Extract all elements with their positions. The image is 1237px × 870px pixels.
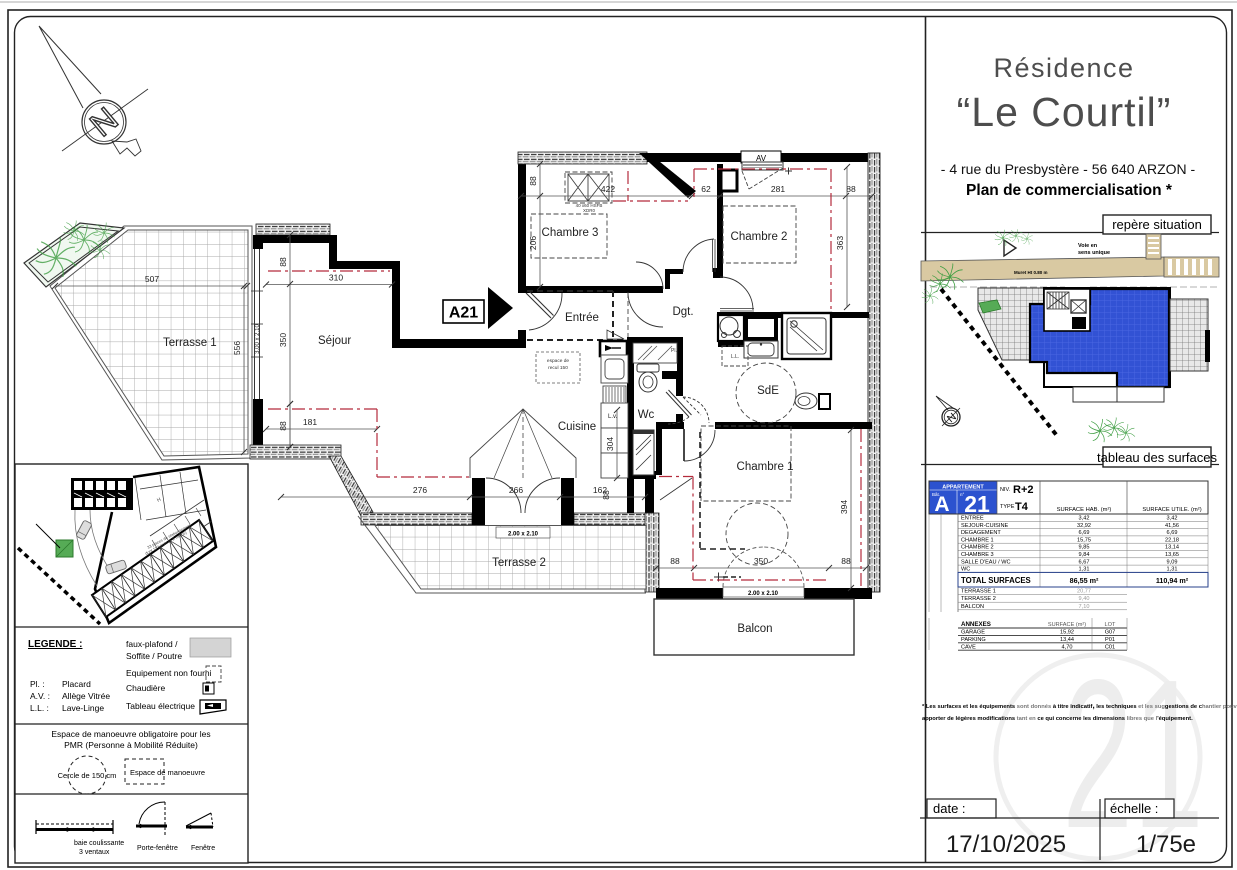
svg-text:C01: C01	[1105, 644, 1115, 650]
svg-text:APPARTEMENT: APPARTEMENT	[942, 485, 984, 491]
svg-text:41,56: 41,56	[1165, 523, 1179, 529]
svg-text:Voie en: Voie en	[1078, 243, 1098, 249]
svg-text:G07: G07	[1105, 630, 1116, 636]
svg-text:SEJOUR-CUISINE: SEJOUR-CUISINE	[961, 523, 1009, 529]
svg-text:BALCON: BALCON	[961, 604, 984, 610]
svg-text:R+2: R+2	[1013, 484, 1034, 496]
svg-text:422: 422	[601, 184, 615, 194]
svg-text:363: 363	[835, 236, 845, 250]
svg-text:6,67: 6,67	[1079, 559, 1090, 565]
svg-text:Wc: Wc	[638, 409, 655, 421]
svg-text:Terrasse 1: Terrasse 1	[163, 337, 217, 349]
svg-text:SURFACE HAB. (m²): SURFACE HAB. (m²)	[1057, 507, 1112, 513]
svg-text:WC: WC	[961, 567, 970, 573]
svg-text:3,42: 3,42	[1167, 516, 1178, 522]
svg-text:Terrasse 2: Terrasse 2	[492, 557, 546, 569]
svg-text:CHAMBRE 1: CHAMBRE 1	[961, 537, 994, 543]
svg-text:Espace de manoeuvre obligatoir: Espace de manoeuvre obligatoire pour les	[51, 729, 210, 739]
svg-text:2.00 x 2.10: 2.00 x 2.10	[748, 591, 779, 597]
svg-text:A.V. :: A.V. :	[30, 691, 50, 701]
svg-text:86,55 m²: 86,55 m²	[1070, 576, 1099, 585]
svg-text:A: A	[934, 493, 949, 516]
svg-text:310: 310	[329, 273, 343, 283]
svg-text:6,69: 6,69	[1167, 530, 1178, 536]
svg-text:15,75: 15,75	[1077, 537, 1091, 543]
svg-text:faux-plafond /: faux-plafond /	[126, 639, 178, 649]
svg-text:CHAMBRE 3: CHAMBRE 3	[961, 552, 994, 558]
svg-text:- 4 rue du Presbystère - 56 64: - 4 rue du Presbystère - 56 640 ARZON -	[941, 161, 1196, 177]
svg-text:T4: T4	[1015, 501, 1029, 513]
svg-text:PARKING: PARKING	[961, 637, 986, 643]
svg-text:Pl. :: Pl. :	[30, 679, 45, 689]
svg-text:LOT: LOT	[1105, 622, 1116, 628]
svg-text:TERRASSE 1: TERRASSE 1	[961, 589, 996, 595]
svg-text:Lave-Linge: Lave-Linge	[62, 703, 104, 713]
svg-text:88: 88	[528, 176, 538, 186]
svg-text:XDR0: XDR0	[583, 208, 596, 213]
svg-text:Plan de commercialisation *: Plan de commercialisation *	[966, 182, 1173, 199]
svg-text:SURFACE (m²): SURFACE (m²)	[1048, 622, 1086, 628]
svg-text:20,77: 20,77	[1077, 589, 1091, 595]
svg-text:recul 150: recul 150	[548, 365, 568, 371]
svg-text:Soffite / Poutre: Soffite / Poutre	[126, 651, 182, 661]
svg-text:repère situation: repère situation	[1112, 217, 1202, 232]
svg-text:9,85: 9,85	[1079, 545, 1090, 551]
svg-text:Séjour: Séjour	[318, 335, 351, 347]
svg-text:A21: A21	[449, 305, 478, 322]
svg-text:Tableau électrique: Tableau électrique	[126, 701, 195, 711]
svg-text:DEGAGEMENT: DEGAGEMENT	[961, 530, 1001, 536]
svg-text:276: 276	[413, 485, 427, 495]
svg-text:TYPE: TYPE	[1000, 504, 1015, 510]
svg-text:Chambre 2: Chambre 2	[731, 231, 788, 243]
svg-text:181: 181	[303, 417, 317, 427]
svg-text:88: 88	[846, 184, 856, 194]
svg-text:266: 266	[509, 485, 523, 495]
svg-text:P01: P01	[1105, 637, 1115, 643]
svg-text:PMR (Personne à Mobilité Rédui: PMR (Personne à Mobilité Réduite)	[64, 740, 198, 750]
svg-text:507: 507	[145, 274, 159, 284]
svg-text:2.00 x 2.10: 2.00 x 2.10	[508, 532, 539, 538]
svg-text:Porte-fenêtre: Porte-fenêtre	[137, 845, 178, 852]
svg-text:88: 88	[278, 257, 288, 267]
svg-text:1/75e: 1/75e	[1136, 831, 1196, 858]
svg-text:Allège Vitrée: Allège Vitrée	[62, 691, 110, 701]
svg-text:394: 394	[839, 500, 849, 514]
svg-text:Placard: Placard	[62, 679, 91, 689]
svg-text:21: 21	[964, 491, 990, 517]
svg-text:13,65: 13,65	[1165, 552, 1179, 558]
svg-text:556: 556	[232, 341, 242, 355]
svg-text:TOTAL SURFACES: TOTAL SURFACES	[961, 576, 1031, 585]
svg-text:Cercle de 150 cm: Cercle de 150 cm	[58, 771, 117, 780]
svg-text:ANNEXES: ANNEXES	[961, 621, 991, 628]
svg-text:L.v.: L.v.	[608, 414, 618, 420]
svg-text:SALLE D'EAU / WC: SALLE D'EAU / WC	[961, 559, 1011, 565]
svg-text:Equipement non fourni: Equipement non fourni	[126, 668, 212, 678]
svg-text:350: 350	[754, 556, 768, 566]
svg-text:Chaudière: Chaudière	[126, 683, 165, 693]
svg-text:3 ventaux: 3 ventaux	[79, 849, 110, 856]
svg-text:9,40: 9,40	[1079, 596, 1090, 602]
svg-text:CAVE: CAVE	[961, 644, 976, 650]
svg-text:3.00 x 2.10: 3.00 x 2.10	[255, 323, 261, 353]
svg-text:tableau des surfaces: tableau des surfaces	[1097, 450, 1217, 465]
svg-text:espace de: espace de	[547, 358, 569, 364]
svg-text:L.L. :: L.L. :	[30, 703, 49, 713]
svg-text:Espace de manoeuvre: Espace de manoeuvre	[130, 768, 205, 777]
svg-text:“Le Courtil”: “Le Courtil”	[957, 89, 1172, 135]
svg-text:9,09: 9,09	[1167, 559, 1178, 565]
svg-text:Pl.: Pl.	[671, 348, 677, 354]
svg-text:88: 88	[601, 490, 611, 500]
svg-text:Résidence: Résidence	[993, 53, 1134, 83]
svg-text:13,14: 13,14	[1165, 545, 1179, 551]
svg-text:281: 281	[771, 184, 785, 194]
svg-text:Balcon: Balcon	[737, 623, 772, 635]
svg-text:15,92: 15,92	[1060, 630, 1074, 636]
svg-text:Fenêtre: Fenêtre	[191, 845, 215, 852]
svg-text:échelle :: échelle :	[1110, 801, 1158, 816]
svg-text:CHAMBRE 2: CHAMBRE 2	[961, 545, 994, 551]
svg-text:1,31: 1,31	[1167, 567, 1178, 573]
svg-text:62: 62	[701, 184, 711, 194]
svg-text:GARAGE: GARAGE	[961, 630, 985, 636]
svg-text:Dgt.: Dgt.	[672, 306, 693, 318]
svg-text:3,42: 3,42	[1079, 516, 1090, 522]
svg-text:88: 88	[670, 556, 680, 566]
svg-text:TERRASSE 2: TERRASSE 2	[961, 596, 996, 602]
svg-text:32,92: 32,92	[1077, 523, 1091, 529]
svg-text:304: 304	[605, 437, 615, 451]
svg-text:SdE: SdE	[757, 385, 779, 397]
svg-text:LEGENDE :: LEGENDE :	[28, 639, 82, 650]
svg-text:13,44: 13,44	[1060, 637, 1074, 643]
svg-text:Muret Ht 0.80 m: Muret Ht 0.80 m	[1014, 270, 1048, 275]
svg-text:Chambre 3: Chambre 3	[542, 227, 599, 239]
svg-text:SURFACE UTILE. (m²): SURFACE UTILE. (m²)	[1142, 507, 1201, 513]
svg-text:7,10: 7,10	[1079, 604, 1090, 610]
svg-text:88: 88	[841, 556, 851, 566]
svg-text:apporter de légères modificati: apporter de légères modifications tant e…	[922, 716, 1193, 722]
svg-text:Chambre 1: Chambre 1	[737, 461, 794, 473]
svg-text:date :: date :	[933, 801, 966, 816]
svg-text:110,94 m²: 110,94 m²	[1156, 576, 1189, 585]
svg-text:sens unique: sens unique	[1078, 250, 1110, 256]
svg-text:L.L.: L.L.	[731, 354, 739, 360]
svg-text:6,69: 6,69	[1079, 530, 1090, 536]
svg-text:NIV.: NIV.	[1000, 487, 1011, 493]
svg-text:350: 350	[278, 333, 288, 347]
svg-text:206: 206	[528, 236, 538, 250]
svg-text:Cuisine: Cuisine	[558, 421, 596, 433]
svg-text:9,84: 9,84	[1079, 552, 1090, 558]
svg-text:ENTREE: ENTREE	[961, 516, 984, 522]
svg-text:baie coulissante: baie coulissante	[74, 840, 124, 847]
svg-text:22,18: 22,18	[1165, 537, 1179, 543]
svg-text:1,31: 1,31	[1079, 567, 1090, 573]
svg-text:17/10/2025: 17/10/2025	[946, 831, 1066, 858]
svg-text:4,70: 4,70	[1062, 644, 1073, 650]
svg-text:Entrée: Entrée	[565, 312, 599, 324]
